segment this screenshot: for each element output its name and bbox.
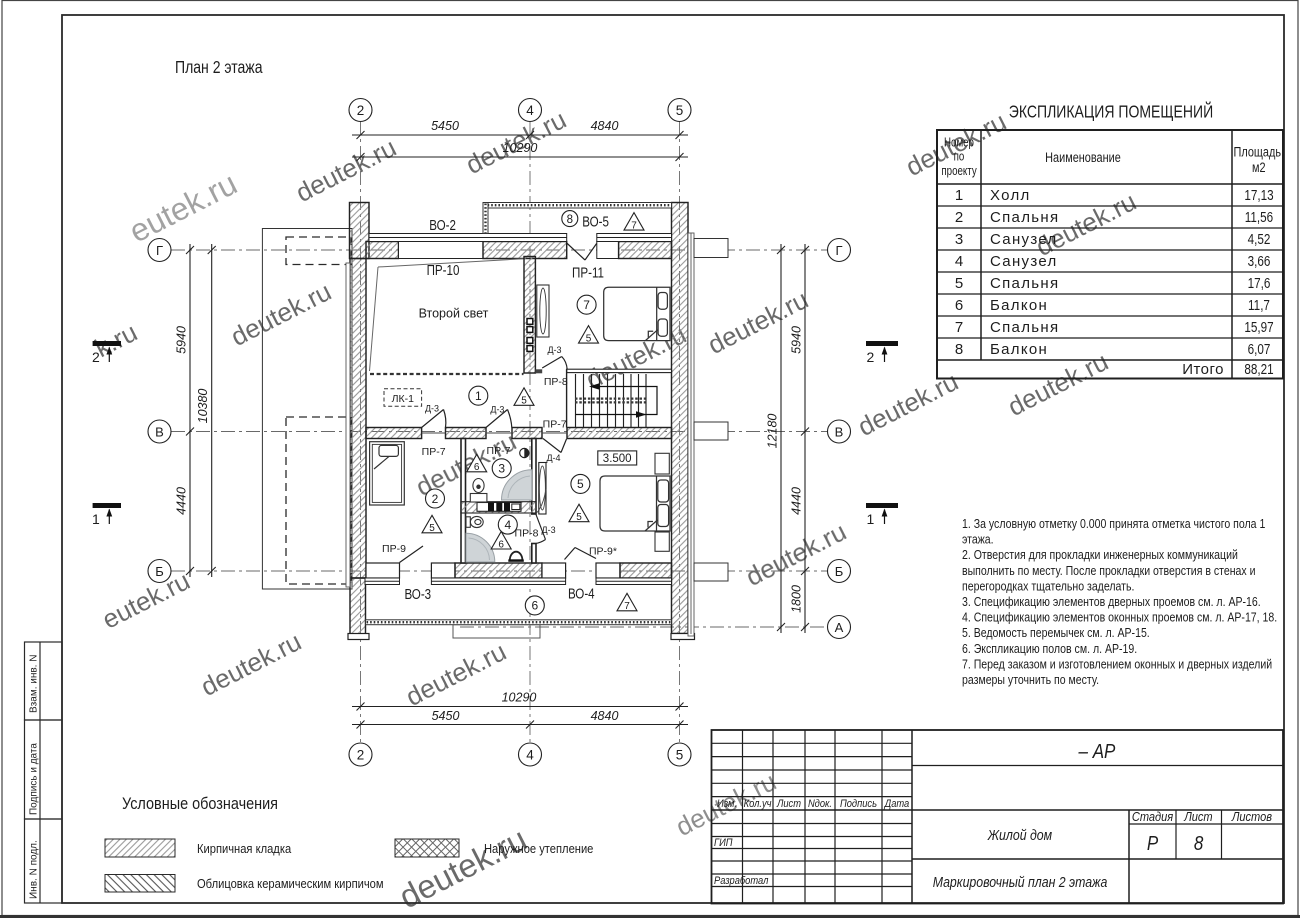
svg-text:Д-3: Д-3 (542, 525, 556, 535)
svg-text:2: 2 (92, 349, 100, 365)
svg-text:м2: м2 (1252, 160, 1266, 176)
svg-text:8: 8 (1194, 832, 1204, 855)
svg-text:ПР-11: ПР-11 (572, 264, 604, 281)
svg-text:5: 5 (676, 747, 684, 762)
svg-text:Подпись и дата: Подпись и дата (29, 743, 40, 815)
svg-text:перегородках тщательно заделат: перегородках тщательно заделать. (962, 578, 1134, 593)
svg-text:6: 6 (531, 599, 538, 613)
svg-text:5450: 5450 (432, 709, 460, 723)
svg-text:7: 7 (583, 298, 590, 312)
svg-text:Санузел: Санузел (990, 231, 1058, 248)
svg-text:4: 4 (526, 103, 534, 118)
svg-text:3.500: 3.500 (603, 453, 632, 465)
svg-text:Спальня: Спальня (990, 209, 1059, 226)
svg-text:Подпись: Подпись (840, 798, 877, 810)
svg-text:Кол.уч: Кол.уч (744, 798, 772, 810)
svg-text:Спальня: Спальня (990, 319, 1059, 336)
svg-text:10380: 10380 (196, 389, 210, 424)
svg-text:3,66: 3,66 (1248, 253, 1271, 270)
svg-text:6: 6 (498, 539, 504, 550)
svg-text:6. Экспликацию полов см. л. АР: 6. Экспликацию полов см. л. АР-19. (962, 641, 1137, 656)
svg-text:выполнить по месту. После прок: выполнить по месту. После прокладки отве… (962, 563, 1256, 578)
svg-text:3: 3 (955, 231, 963, 248)
svg-text:ПР-8: ПР-8 (544, 376, 568, 388)
svg-text:15,97: 15,97 (1244, 319, 1273, 336)
svg-text:Д-3: Д-3 (425, 403, 439, 413)
svg-text:Санузел: Санузел (990, 253, 1058, 270)
svg-text:Стадия: Стадия (1132, 809, 1174, 824)
svg-text:6: 6 (955, 297, 963, 314)
svg-text:Г: Г (835, 243, 842, 258)
svg-text:11,56: 11,56 (1245, 209, 1273, 226)
svg-text:ПР-7: ПР-7 (422, 446, 446, 458)
svg-text:Д-3: Д-3 (547, 345, 561, 355)
svg-text:по: по (954, 150, 965, 163)
svg-text:10290: 10290 (503, 141, 538, 155)
svg-text:1: 1 (955, 187, 963, 204)
svg-text:4840: 4840 (591, 709, 619, 723)
svg-text:5: 5 (521, 396, 527, 407)
svg-text:Б: Б (155, 564, 164, 579)
svg-text:ВО-5: ВО-5 (582, 213, 609, 230)
svg-text:17,6: 17,6 (1248, 275, 1271, 292)
svg-text:Дата: Дата (884, 798, 910, 810)
svg-text:ГИП: ГИП (714, 837, 733, 849)
svg-text:Балкон: Балкон (990, 341, 1048, 358)
svg-text:10290: 10290 (502, 691, 537, 705)
svg-text:ПР-9: ПР-9 (382, 543, 406, 555)
svg-text:Спальня: Спальня (990, 275, 1059, 292)
svg-text:Д-4: Д-4 (546, 453, 560, 463)
svg-text:Лист: Лист (776, 798, 801, 810)
svg-text:Д-3: Д-3 (490, 405, 504, 415)
svg-text:2: 2 (955, 209, 963, 226)
svg-text:5. Ведомость перемычек см. л.: 5. Ведомость перемычек см. л. АР-15. (962, 625, 1150, 640)
svg-text:В: В (155, 424, 164, 439)
svg-text:3. Спецификацию элементов двер: 3. Спецификацию элементов дверных проемо… (962, 594, 1261, 609)
svg-text:Кирпичная кладка: Кирпичная кладка (197, 841, 291, 856)
svg-text:размеры уточнить по месту.: размеры уточнить по месту. (962, 672, 1099, 687)
svg-text:4: 4 (955, 253, 963, 270)
svg-text:ПР-7: ПР-7 (487, 445, 511, 457)
svg-text:План 2 этажа: План 2 этажа (175, 57, 263, 77)
svg-text:Листов: Листов (1231, 809, 1272, 824)
svg-text:2: 2 (432, 492, 439, 506)
svg-text:Изм.: Изм. (717, 798, 737, 810)
svg-text:Инв. N подл.: Инв. N подл. (29, 840, 40, 899)
svg-text:Г: Г (156, 243, 163, 258)
svg-text:Холл: Холл (990, 187, 1031, 204)
svg-text:4. Спецификацию элементов окон: 4. Спецификацию элементов оконных проемо… (962, 609, 1277, 624)
svg-text:7: 7 (631, 220, 637, 231)
svg-text:ПР-8: ПР-8 (515, 528, 539, 540)
svg-text:ВО-4: ВО-4 (568, 585, 595, 602)
svg-text:2: 2 (357, 747, 365, 762)
svg-text:проекту: проекту (941, 165, 977, 178)
svg-text:2. Отверстия для прокладки инж: 2. Отверстия для прокладки инженерных ко… (962, 547, 1238, 562)
svg-text:1: 1 (867, 511, 875, 527)
svg-text:5940: 5940 (790, 326, 804, 354)
svg-text:Условные обозначения: Условные обозначения (122, 795, 278, 813)
svg-text:Наружное утепление: Наружное утепление (484, 841, 594, 856)
svg-text:Балкон: Балкон (990, 297, 1048, 314)
svg-text:В: В (835, 424, 844, 439)
svg-text:1800: 1800 (790, 585, 804, 613)
svg-text:1: 1 (92, 511, 100, 527)
svg-text:1. За условную отметку 0.000 п: 1. За условную отметку 0.000 принята отм… (962, 516, 1266, 531)
svg-text:12180: 12180 (766, 414, 780, 449)
svg-text:ПР-10: ПР-10 (427, 262, 460, 279)
svg-text:4,52: 4,52 (1248, 231, 1271, 248)
svg-text:3: 3 (498, 462, 505, 476)
svg-text:ЭКСПЛИКАЦИЯ ПОМЕЩЕНИЙ: ЭКСПЛИКАЦИЯ ПОМЕЩЕНИЙ (1009, 101, 1213, 122)
svg-text:88,21: 88,21 (1244, 361, 1273, 378)
svg-text:этажа.: этажа. (962, 531, 994, 546)
svg-text:4: 4 (526, 747, 534, 762)
svg-text:Маркировочный план 2 этажа: Маркировочный план 2 этажа (933, 874, 1108, 890)
svg-text:2: 2 (357, 103, 365, 118)
svg-text:7. Перед заказом и изготовлени: 7. Перед заказом и изготовлением оконных… (962, 656, 1272, 671)
svg-text:4440: 4440 (175, 487, 189, 515)
svg-text:8: 8 (955, 341, 963, 358)
svg-text:7: 7 (955, 319, 963, 336)
svg-text:Nдок.: Nдок. (808, 798, 832, 810)
svg-text:4: 4 (504, 518, 511, 532)
svg-text:Номер: Номер (944, 136, 974, 149)
svg-text:Наименование: Наименование (1045, 150, 1121, 166)
svg-text:5940: 5940 (175, 326, 189, 354)
svg-text:17,13: 17,13 (1244, 187, 1273, 204)
svg-text:ПР-7: ПР-7 (543, 418, 567, 430)
svg-text:5450: 5450 (431, 119, 459, 133)
svg-text:ПР-9*: ПР-9* (589, 545, 617, 557)
svg-text:2: 2 (867, 349, 875, 365)
svg-text:Лист: Лист (1183, 809, 1212, 824)
svg-text:Взам. инв. N: Взам. инв. N (29, 655, 40, 713)
svg-text:Р: Р (1147, 832, 1159, 855)
svg-text:Облицовка керамическим кирпичо: Облицовка керамическим кирпичом (197, 876, 384, 891)
svg-text:А: А (835, 620, 844, 635)
svg-text:5: 5 (955, 275, 963, 292)
svg-text:8: 8 (567, 214, 573, 226)
svg-text:Б: Б (835, 564, 844, 579)
svg-text:11,7: 11,7 (1248, 297, 1270, 314)
svg-text:ВО-2: ВО-2 (429, 217, 456, 234)
svg-text:1: 1 (475, 389, 482, 403)
svg-text:Жилой дом: Жилой дом (987, 827, 1052, 843)
svg-text:4440: 4440 (790, 487, 804, 515)
svg-text:5: 5 (576, 512, 582, 523)
svg-text:5: 5 (586, 333, 592, 344)
svg-text:– АР: – АР (1078, 740, 1116, 763)
svg-text:5: 5 (676, 103, 684, 118)
svg-text:7: 7 (624, 601, 630, 612)
svg-text:Второй свет: Второй свет (419, 307, 489, 321)
svg-text:Разработал: Разработал (714, 874, 769, 887)
svg-text:5: 5 (429, 523, 435, 534)
svg-text:Итого: Итого (1182, 361, 1224, 378)
svg-text:Площадь,: Площадь, (1234, 144, 1285, 160)
svg-text:ЛК-1: ЛК-1 (392, 393, 415, 405)
svg-text:4840: 4840 (591, 119, 619, 133)
svg-text:ВО-3: ВО-3 (404, 586, 431, 603)
svg-text:6: 6 (474, 462, 480, 473)
svg-text:5: 5 (577, 477, 584, 491)
svg-text:6,07: 6,07 (1248, 341, 1271, 358)
